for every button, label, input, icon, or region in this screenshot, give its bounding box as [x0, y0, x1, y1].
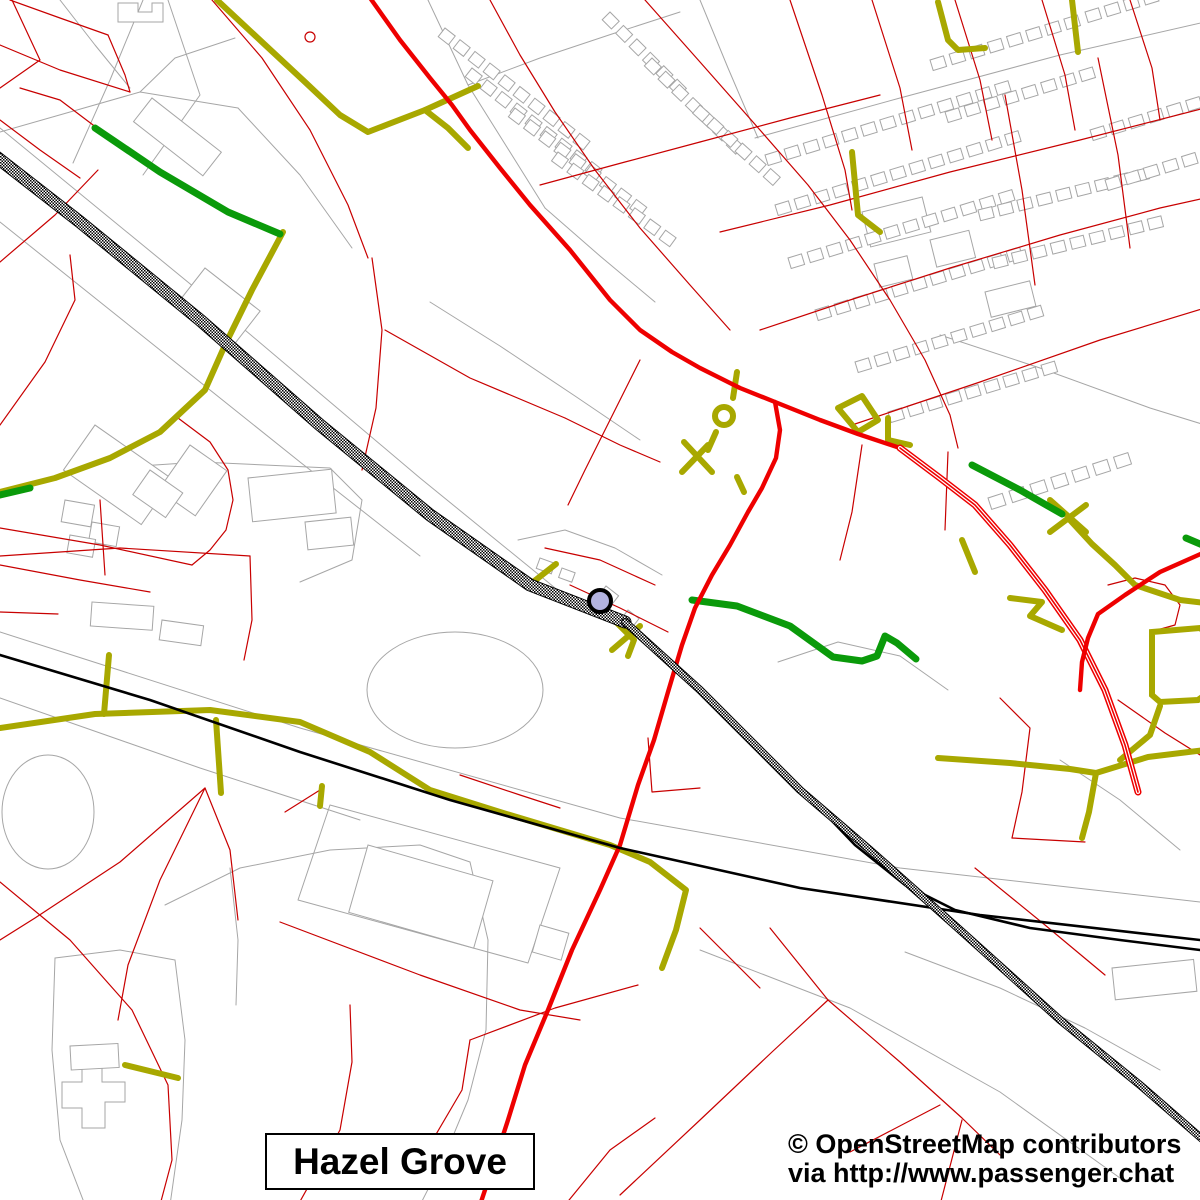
footpath [1082, 773, 1096, 838]
house [1031, 245, 1047, 259]
footpath [682, 445, 708, 472]
parcel-line [430, 302, 640, 440]
building [70, 1043, 119, 1069]
house [1162, 158, 1179, 173]
house [960, 201, 977, 216]
house [928, 154, 945, 169]
house [988, 493, 1006, 509]
house [978, 207, 994, 221]
building [930, 230, 976, 267]
minor-road [720, 108, 1200, 232]
house [1041, 79, 1058, 94]
house [784, 145, 801, 160]
house [1186, 97, 1200, 112]
house [985, 137, 1002, 152]
minor-road [280, 922, 580, 1020]
footpath [938, 758, 1096, 773]
minor-road [840, 445, 862, 560]
minor-road [770, 928, 828, 1000]
major-road [368, 0, 900, 448]
building [159, 620, 203, 646]
house [1003, 373, 1020, 388]
major-road [480, 402, 780, 1200]
cycleway [692, 600, 916, 661]
cycleway [1186, 538, 1200, 546]
house [997, 202, 1013, 216]
house [1142, 0, 1159, 5]
footpath [1096, 750, 1200, 773]
minor-road [0, 788, 205, 940]
house [880, 116, 897, 131]
house [1093, 459, 1111, 475]
parcel-line [468, 12, 680, 85]
footpath [737, 477, 744, 492]
house [1050, 240, 1066, 254]
house [998, 190, 1015, 205]
minor-road [362, 258, 382, 470]
minor-road [10, 0, 108, 35]
parcel-line [140, 38, 235, 92]
house [871, 172, 888, 187]
minor-road [565, 418, 660, 462]
house [1008, 311, 1025, 326]
house [1036, 192, 1052, 206]
house [951, 329, 968, 344]
house [1104, 2, 1121, 17]
minor-road [385, 330, 565, 418]
parcel-line [55, 950, 175, 960]
house [775, 201, 792, 216]
house [1070, 235, 1086, 249]
minor-road [1130, 0, 1160, 120]
house [1022, 85, 1039, 100]
house [1060, 73, 1077, 88]
house [874, 352, 891, 367]
house [815, 306, 832, 321]
mini-roundabout [305, 32, 315, 42]
minor-road [0, 255, 75, 425]
house [1051, 473, 1069, 489]
house [966, 142, 983, 157]
house [807, 248, 824, 263]
house [644, 219, 661, 236]
parcel-line [940, 335, 1200, 425]
house [1056, 187, 1072, 201]
house [480, 80, 497, 97]
house [918, 104, 935, 119]
house [788, 254, 805, 269]
minor-road [0, 0, 40, 88]
house [498, 75, 515, 92]
house [989, 317, 1006, 332]
building [248, 469, 336, 522]
minor-road [1000, 698, 1030, 838]
house [1007, 33, 1024, 48]
place-label-text: Hazel Grove [293, 1141, 507, 1183]
railway-hatched [625, 622, 1200, 1150]
parcel-line [1060, 760, 1180, 850]
house [495, 91, 512, 108]
minor-road [212, 0, 368, 258]
house [1143, 164, 1160, 179]
building [1112, 959, 1197, 999]
house [629, 39, 646, 56]
house [1079, 67, 1096, 82]
house [984, 379, 1001, 394]
attribution: © OpenStreetMap contributors via http://… [788, 1130, 1181, 1188]
house [855, 358, 872, 373]
house [1182, 153, 1199, 168]
house [970, 323, 987, 338]
house [1026, 27, 1043, 42]
house [842, 128, 859, 143]
location-marker[interactable] [587, 588, 613, 614]
house [1072, 466, 1090, 482]
house [893, 346, 910, 361]
footpath [962, 540, 975, 572]
house [794, 195, 811, 210]
house [832, 183, 849, 198]
map-viewport[interactable]: Hazel Grove © OpenStreetMap contributors… [0, 0, 1200, 1200]
house [1128, 221, 1144, 235]
footpath [217, 0, 478, 132]
house [483, 63, 500, 80]
building [90, 602, 154, 630]
footpath [938, 2, 985, 50]
house [892, 283, 909, 298]
house [763, 169, 780, 186]
building [67, 535, 96, 557]
parcel-line [52, 958, 85, 1200]
house [465, 68, 482, 85]
minor-road [565, 1118, 655, 1200]
house [528, 98, 545, 115]
building [305, 517, 354, 550]
railway-line [812, 800, 1200, 950]
house [813, 189, 830, 204]
footpath [125, 1065, 178, 1078]
minor-road [490, 0, 730, 330]
house [513, 86, 530, 103]
house [543, 110, 560, 127]
parcel-line [778, 642, 948, 690]
building [532, 925, 569, 960]
footpath [320, 786, 322, 806]
house [1045, 21, 1062, 36]
minor-road [700, 928, 760, 988]
minor-road [1098, 58, 1130, 248]
house [468, 51, 485, 68]
house [941, 207, 958, 222]
land-outline [367, 632, 543, 748]
minor-road [545, 548, 655, 585]
house [602, 12, 619, 29]
minor-road [0, 170, 98, 262]
house [930, 56, 947, 71]
house [1147, 216, 1163, 230]
minor-road [205, 788, 238, 920]
minor-road [648, 738, 700, 792]
building [874, 256, 913, 288]
land-outline [2, 755, 94, 869]
attribution-line1: © OpenStreetMap contributors [788, 1130, 1181, 1159]
cycleway [972, 465, 1062, 514]
house [826, 242, 843, 257]
house [1085, 8, 1102, 23]
house [845, 236, 862, 251]
footpath [216, 720, 221, 793]
house [987, 38, 1004, 53]
parcel-line [0, 92, 238, 132]
building [349, 845, 493, 948]
minor-road [0, 565, 150, 592]
building [61, 500, 94, 527]
house [1022, 367, 1039, 382]
footpath [1072, 0, 1078, 52]
house [1114, 453, 1132, 469]
minor-road [118, 788, 205, 1020]
attribution-line2: via http://www.passenger.chat [788, 1159, 1181, 1188]
house [1124, 170, 1141, 185]
house [453, 40, 470, 57]
footpath [104, 655, 109, 714]
minor-road [0, 882, 172, 1200]
house [861, 122, 878, 137]
house [1167, 103, 1184, 118]
minor-road [0, 612, 58, 614]
parcel-line [0, 698, 360, 820]
minor-road [0, 45, 130, 92]
house [438, 28, 455, 45]
house [926, 396, 943, 411]
place-label: Hazel Grove [265, 1133, 535, 1190]
house [932, 335, 949, 350]
minor-road [1012, 838, 1085, 842]
house [909, 160, 926, 175]
building-outline [62, 1062, 125, 1128]
house [930, 271, 947, 286]
building [559, 568, 576, 582]
house [765, 151, 782, 166]
house [1075, 182, 1091, 196]
minor-road [945, 452, 948, 530]
house [659, 230, 676, 247]
minor-road [244, 556, 252, 660]
minor-road [0, 548, 250, 556]
house [947, 148, 964, 163]
house [803, 139, 820, 154]
house [558, 122, 575, 139]
house [890, 166, 907, 181]
footpath-loop [1152, 628, 1200, 702]
house [1089, 230, 1105, 244]
minor-road [428, 1040, 470, 1148]
house [1108, 226, 1124, 240]
footpath-loop [715, 407, 733, 425]
house [749, 156, 766, 173]
minor-road [285, 790, 320, 812]
